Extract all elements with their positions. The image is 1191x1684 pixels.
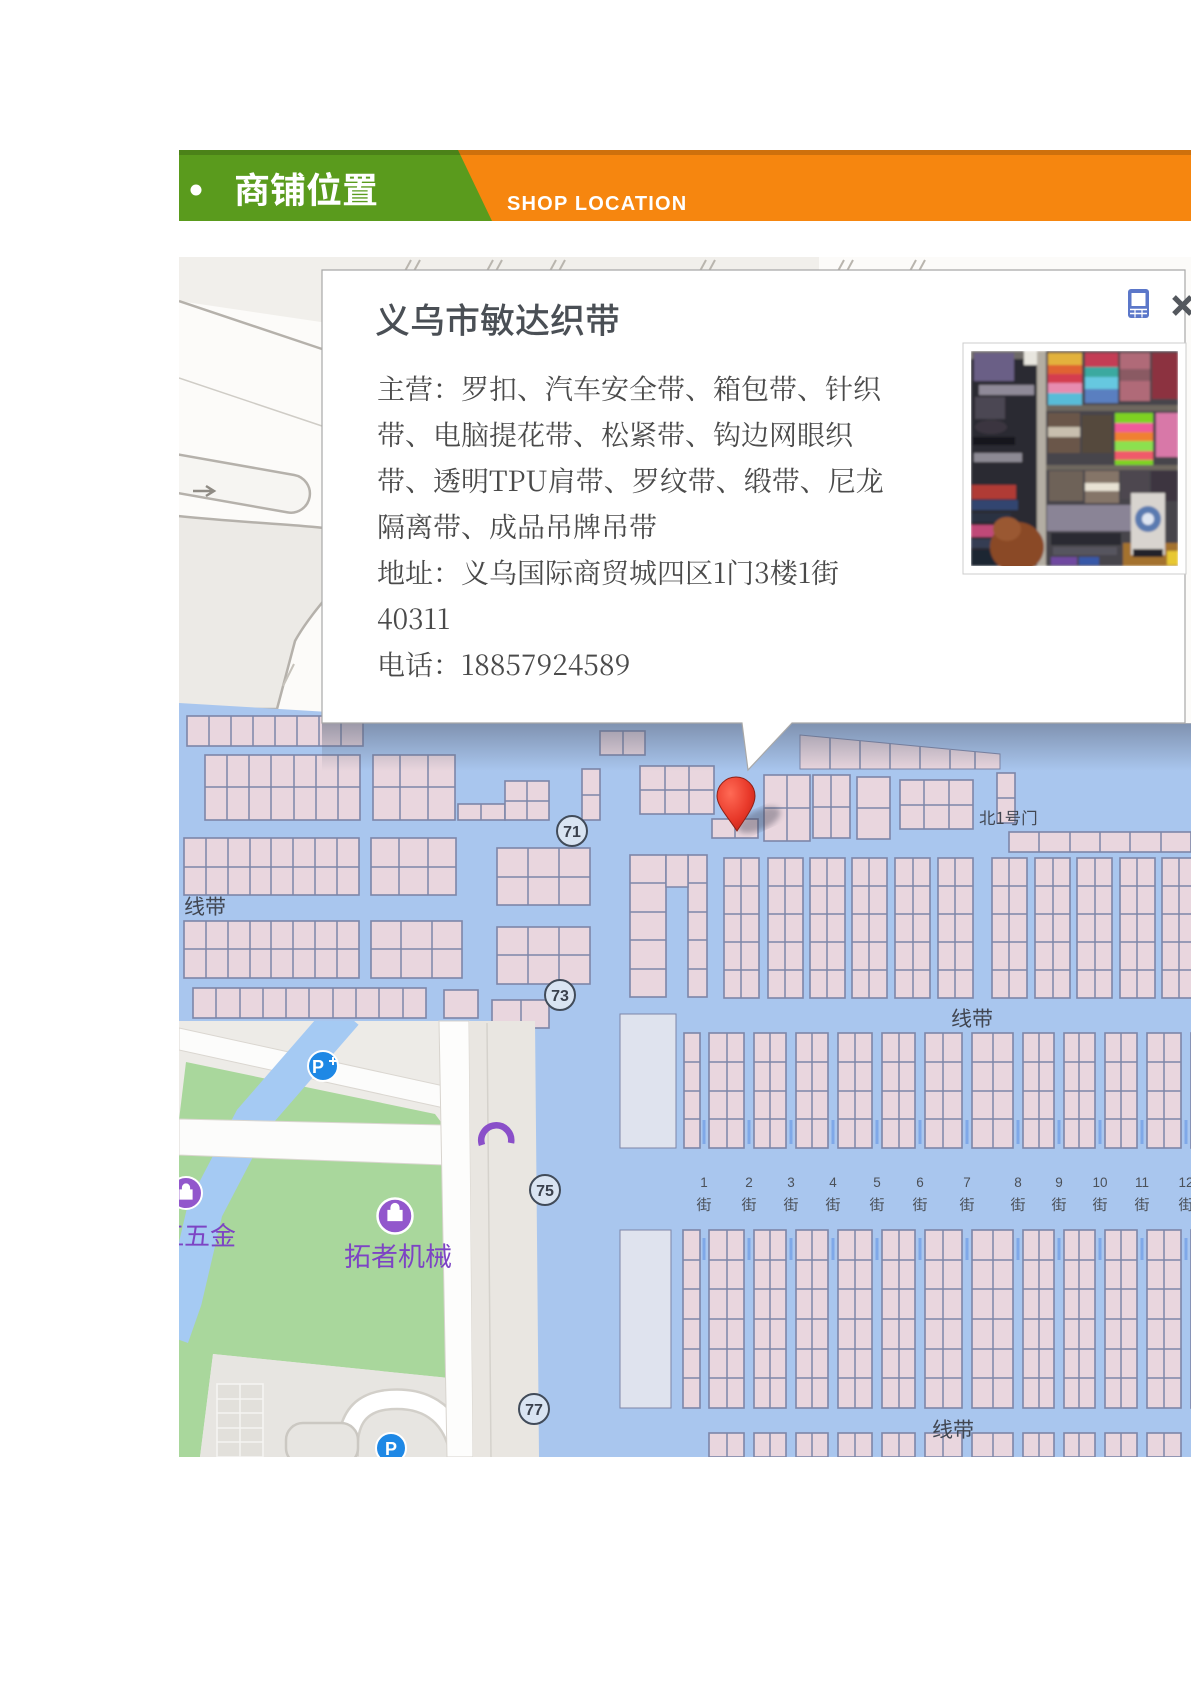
svg-text:SHOP LOCATION: SHOP LOCATION [507,193,687,215]
svg-text:P: P [385,1439,397,1457]
svg-text:10: 10 [1092,1175,1107,1190]
svg-text:1: 1 [700,1175,708,1190]
svg-text:9: 9 [1055,1175,1063,1190]
svg-text:4: 4 [829,1175,837,1190]
svg-text:2: 2 [745,1175,753,1190]
svg-text:11: 11 [1135,1175,1149,1190]
svg-text:8: 8 [1014,1175,1022,1190]
svg-text:7: 7 [963,1175,971,1190]
svg-text:73: 73 [551,988,569,1005]
svg-text:P: P [312,1057,324,1077]
svg-text:6: 6 [916,1175,924,1190]
svg-text:3: 3 [787,1175,795,1190]
svg-text:75: 75 [536,1183,554,1200]
svg-text:5: 5 [873,1175,881,1190]
svg-text:71: 71 [563,824,581,841]
svg-text:77: 77 [525,1402,543,1419]
svg-text:12: 12 [1178,1175,1191,1190]
